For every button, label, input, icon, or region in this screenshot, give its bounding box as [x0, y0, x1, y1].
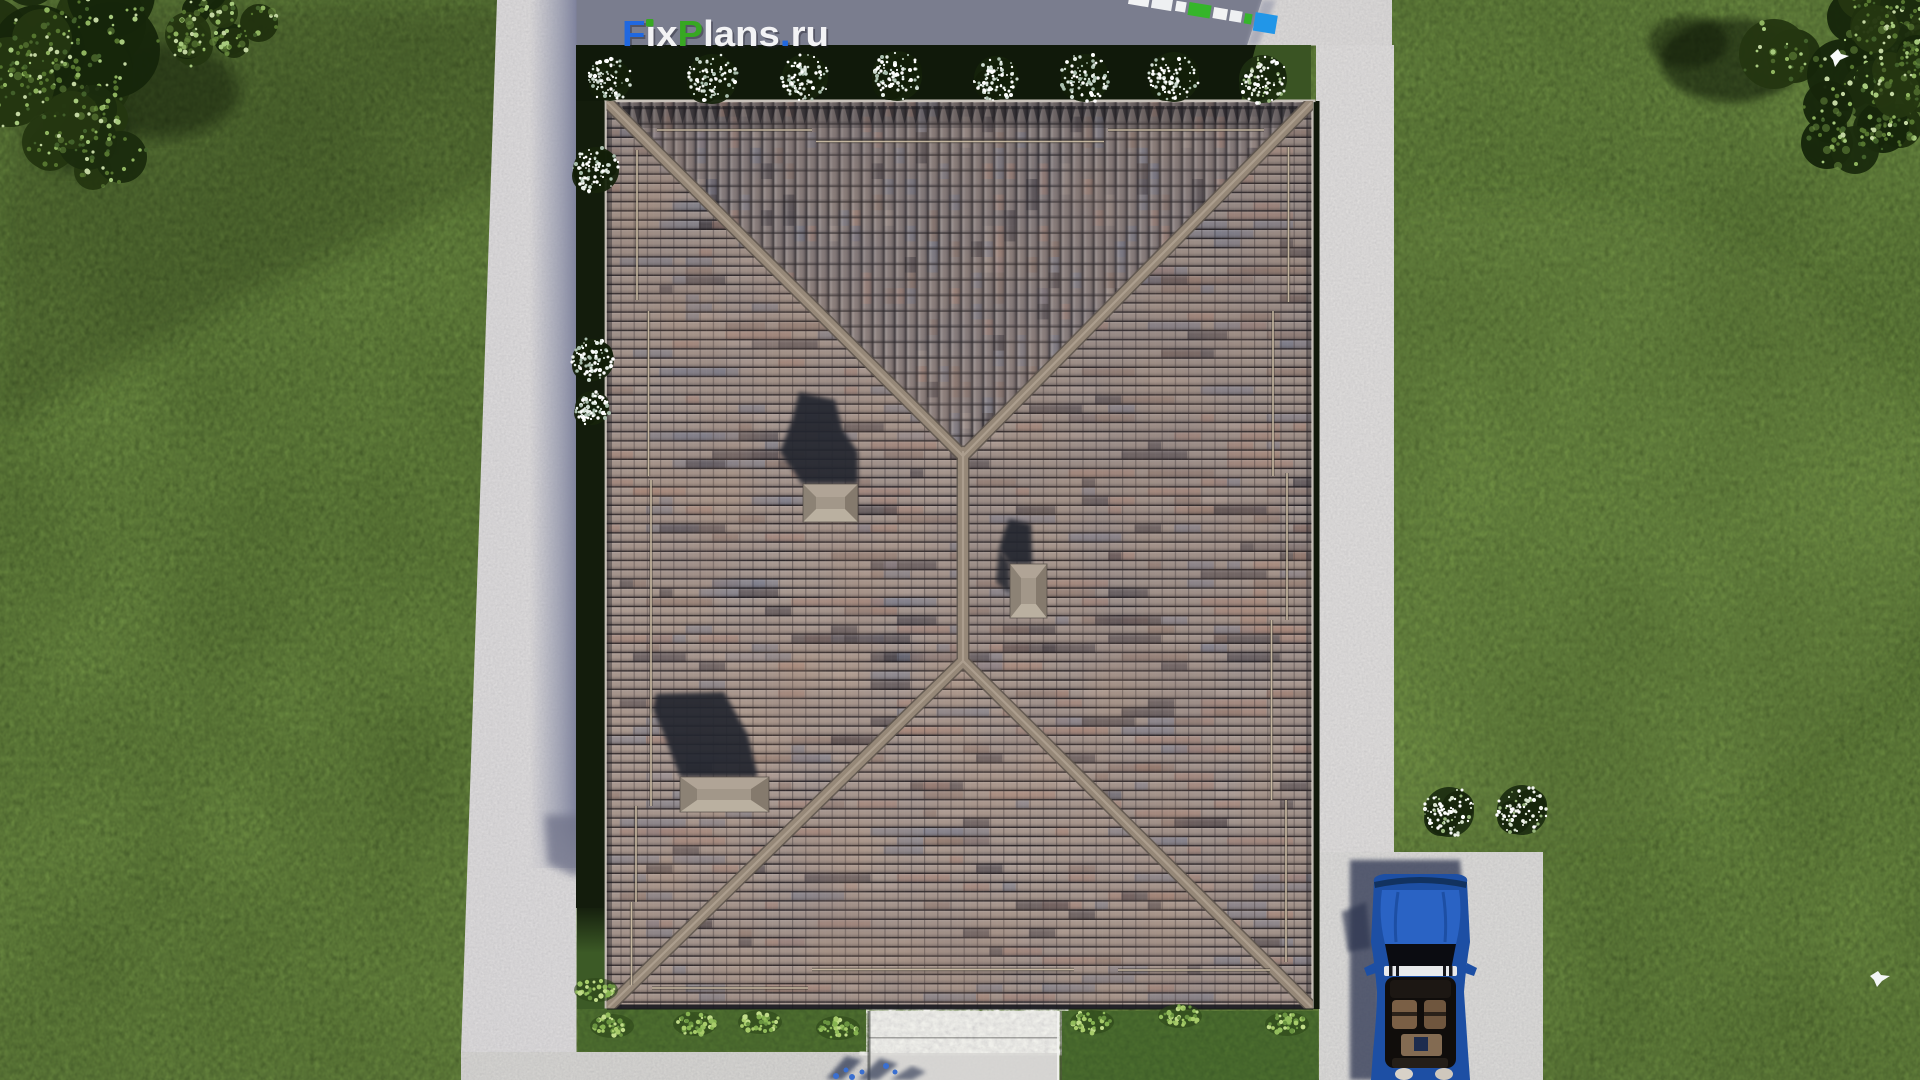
svg-text:FıxPlans.ru: FıxPlans.ru [622, 13, 829, 54]
